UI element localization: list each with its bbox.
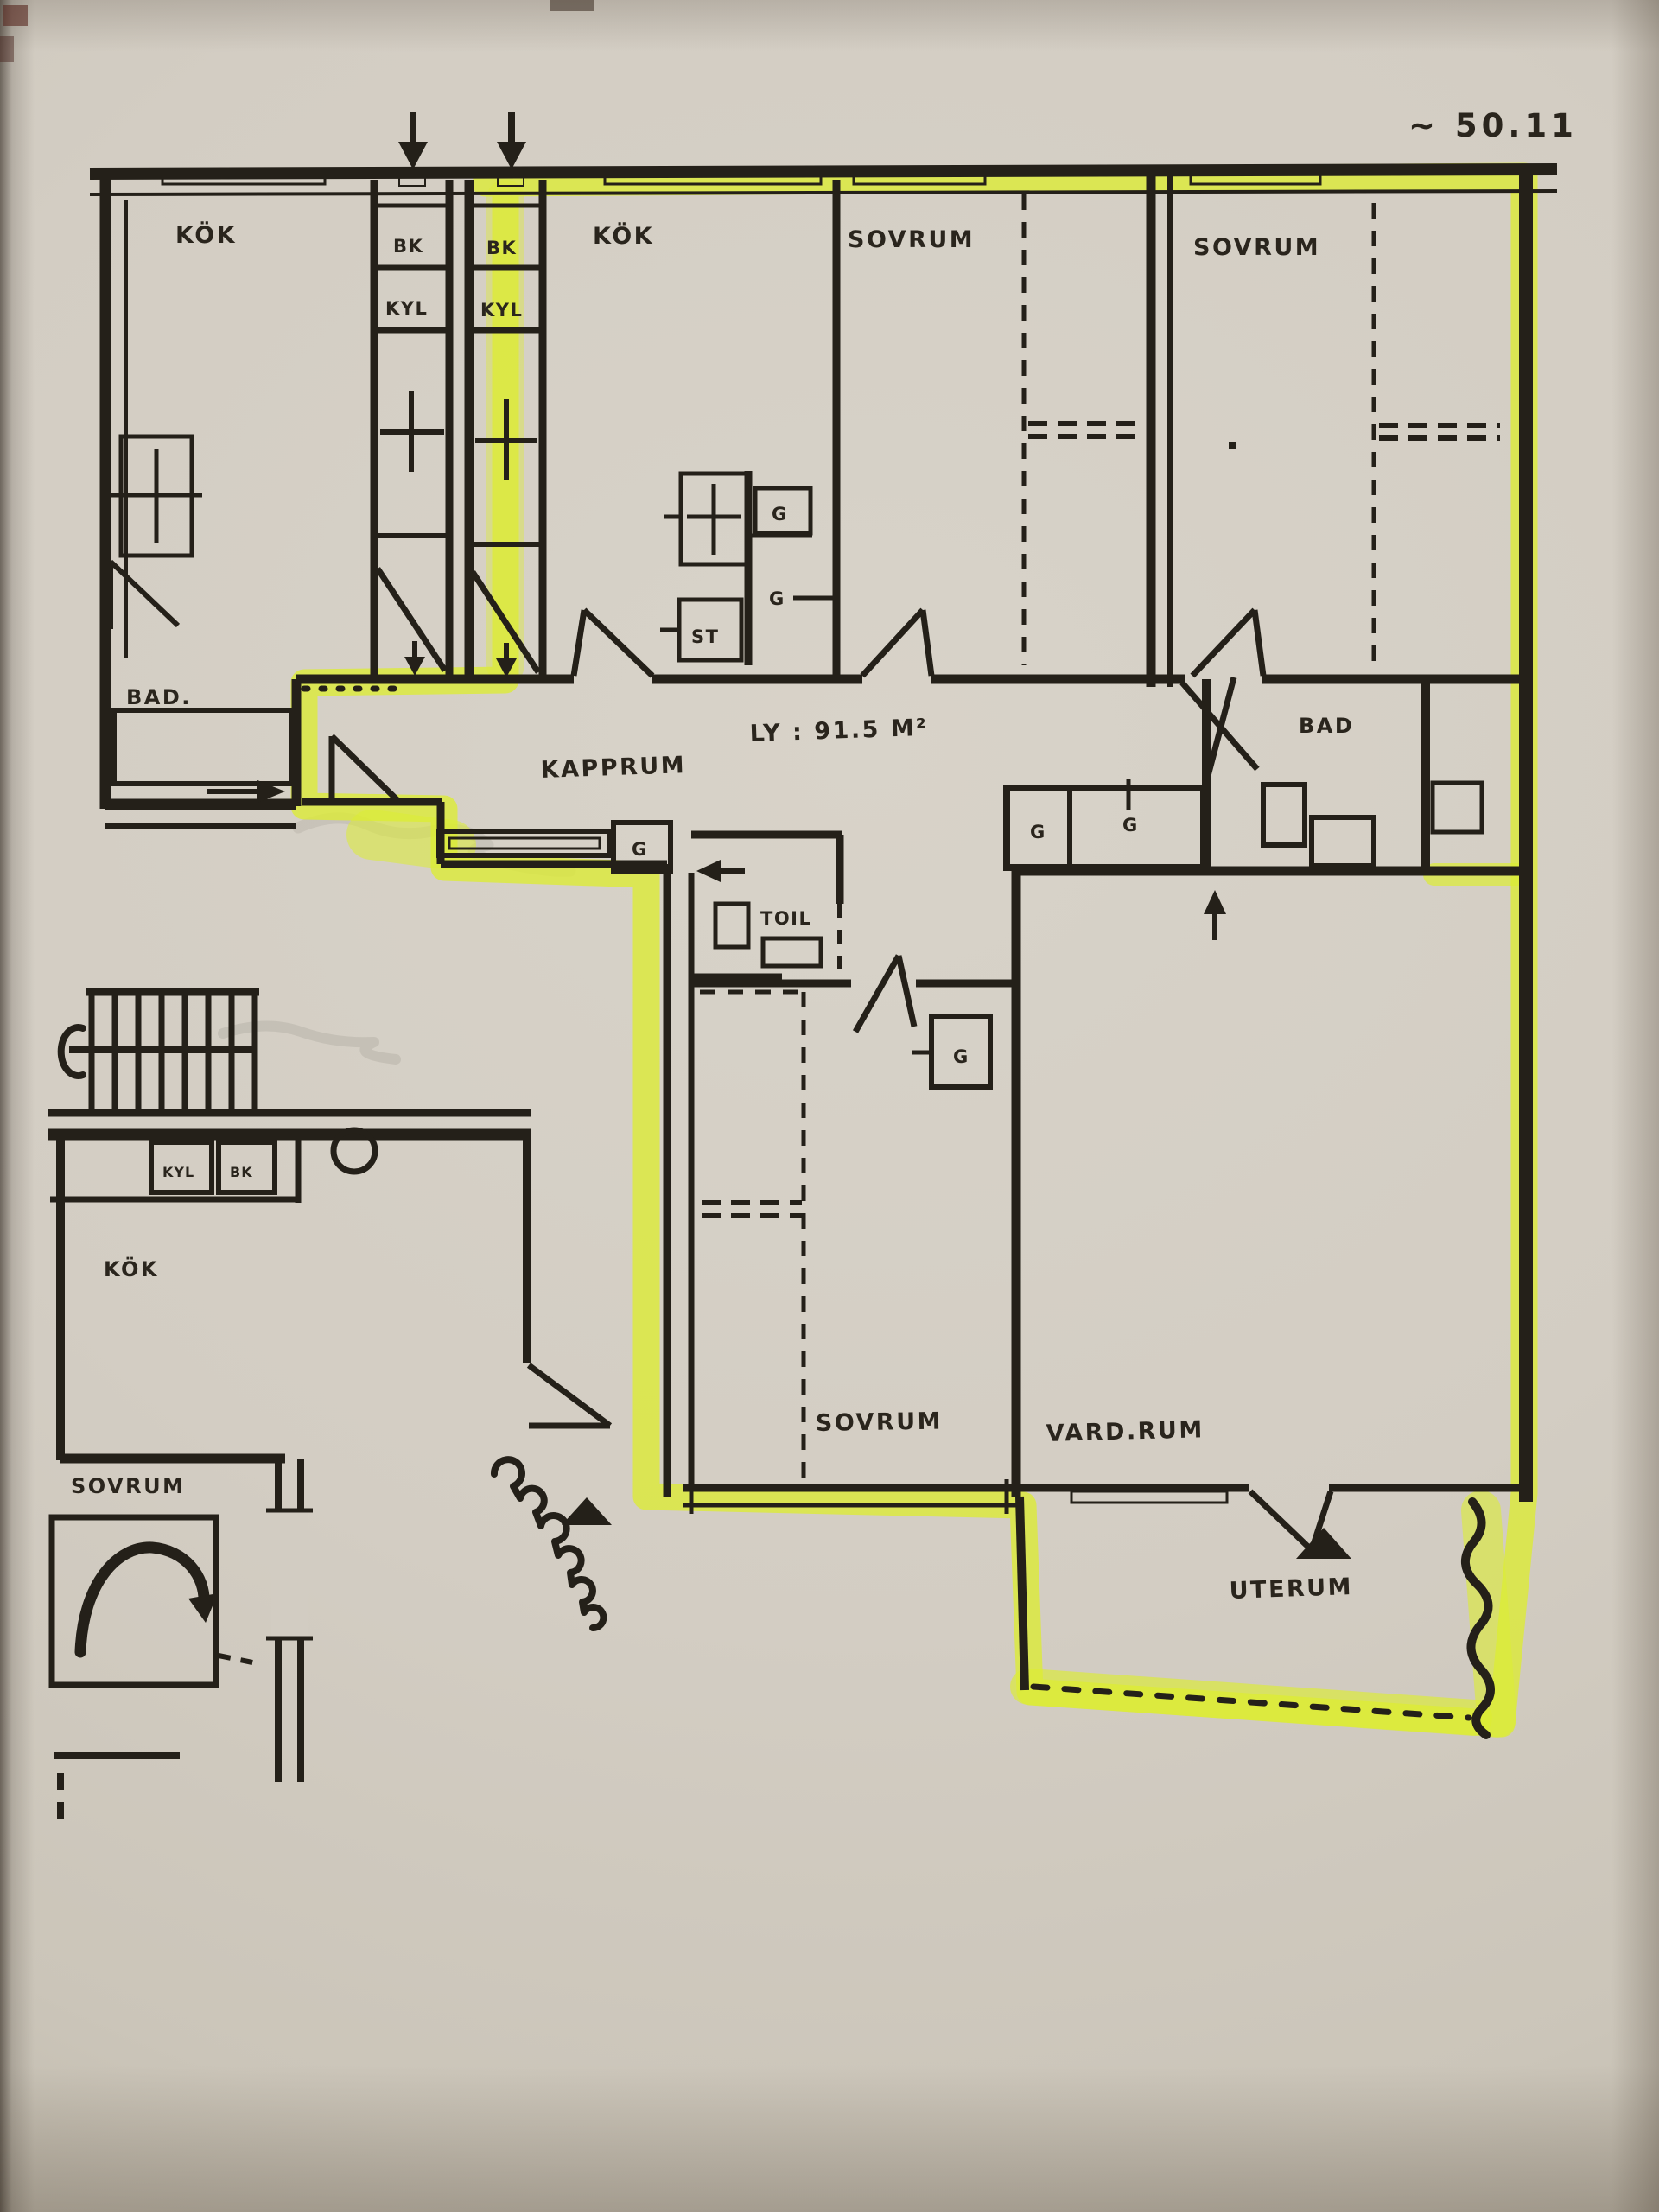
room-label-sovrum-4: SOVRUM bbox=[71, 1474, 185, 1498]
closet-label-g-2: G bbox=[769, 588, 785, 609]
stairwell bbox=[61, 992, 259, 1111]
photographed-floor-plan: ~ 50.11 KÖK BK KYL BK KYL KÖK SOVRUM SOV… bbox=[0, 0, 1659, 2212]
closet-label-bk-2: BK bbox=[486, 238, 517, 258]
room-label-kok-1: KÖK bbox=[175, 220, 237, 249]
curved-arrow-icon bbox=[52, 1517, 218, 1685]
door-arrow-icon bbox=[696, 860, 721, 882]
room-label-bad-left: BAD. bbox=[126, 685, 192, 709]
neighbour-lower-walls bbox=[48, 1113, 610, 1819]
closet-label-g-4: G bbox=[1030, 822, 1046, 842]
scale-note: ~ 50.11 bbox=[1408, 107, 1578, 144]
kitchen1-fixtures bbox=[111, 436, 202, 629]
closet-label-kyl-3: KYL bbox=[162, 1164, 194, 1180]
right-closets-and-bath bbox=[1007, 677, 1482, 940]
corridor-walls bbox=[296, 679, 1526, 1497]
window bbox=[1071, 1491, 1227, 1503]
room-label-sovrum-3: SOVRUM bbox=[816, 1408, 944, 1437]
closet-label-bk-3: BK bbox=[230, 1164, 253, 1180]
triangle-arrow-icon bbox=[562, 1497, 612, 1525]
door-gap bbox=[271, 1510, 308, 1638]
room-label-kok-2: KÖK bbox=[593, 221, 654, 250]
closet-label-g-5: G bbox=[1122, 815, 1139, 836]
labels: ~ 50.11 KÖK BK KYL BK KYL KÖK SOVRUM SOV… bbox=[71, 107, 1578, 1605]
floor-plan-drawing: ~ 50.11 KÖK BK KYL BK KYL KÖK SOVRUM SOV… bbox=[0, 0, 1659, 2212]
room-label-kapprum: KAPPRUM bbox=[540, 752, 686, 784]
bedroom1-fixtures bbox=[862, 194, 1139, 676]
closet-label-g-6: G bbox=[953, 1046, 969, 1067]
bedroom2-fixtures bbox=[1192, 203, 1500, 676]
room-label-sovrum-2: SOVRUM bbox=[1193, 234, 1320, 261]
closet-label-st: ST bbox=[691, 626, 719, 647]
room-label-vardrum: VARD.RUM bbox=[1046, 1416, 1205, 1447]
area-note: LY : 91.5 M² bbox=[749, 715, 929, 747]
bathtub bbox=[114, 710, 291, 784]
ink-drawing: ~ 50.11 KÖK BK KYL BK KYL KÖK SOVRUM SOV… bbox=[48, 107, 1578, 1819]
handwritten-note bbox=[494, 1459, 612, 1628]
closet-label-kyl-1: KYL bbox=[385, 298, 428, 319]
room-label-bad-right: BAD bbox=[1299, 714, 1354, 738]
room-label-sovrum-1: SOVRUM bbox=[848, 226, 975, 253]
room-label-uterum: UTERUM bbox=[1229, 1573, 1353, 1605]
closet-label-g-1: G bbox=[772, 504, 788, 524]
up-arrow-icon bbox=[1204, 890, 1226, 914]
closet-label-bk-1: BK bbox=[393, 236, 423, 257]
room-label-kok-3: KÖK bbox=[104, 1255, 159, 1281]
entrance-arrow-icon bbox=[398, 112, 526, 169]
closet-label-g-3: G bbox=[632, 839, 648, 860]
closet-label-kyl-2: KYL bbox=[480, 300, 523, 321]
room-label-toil: TOIL bbox=[760, 908, 811, 929]
